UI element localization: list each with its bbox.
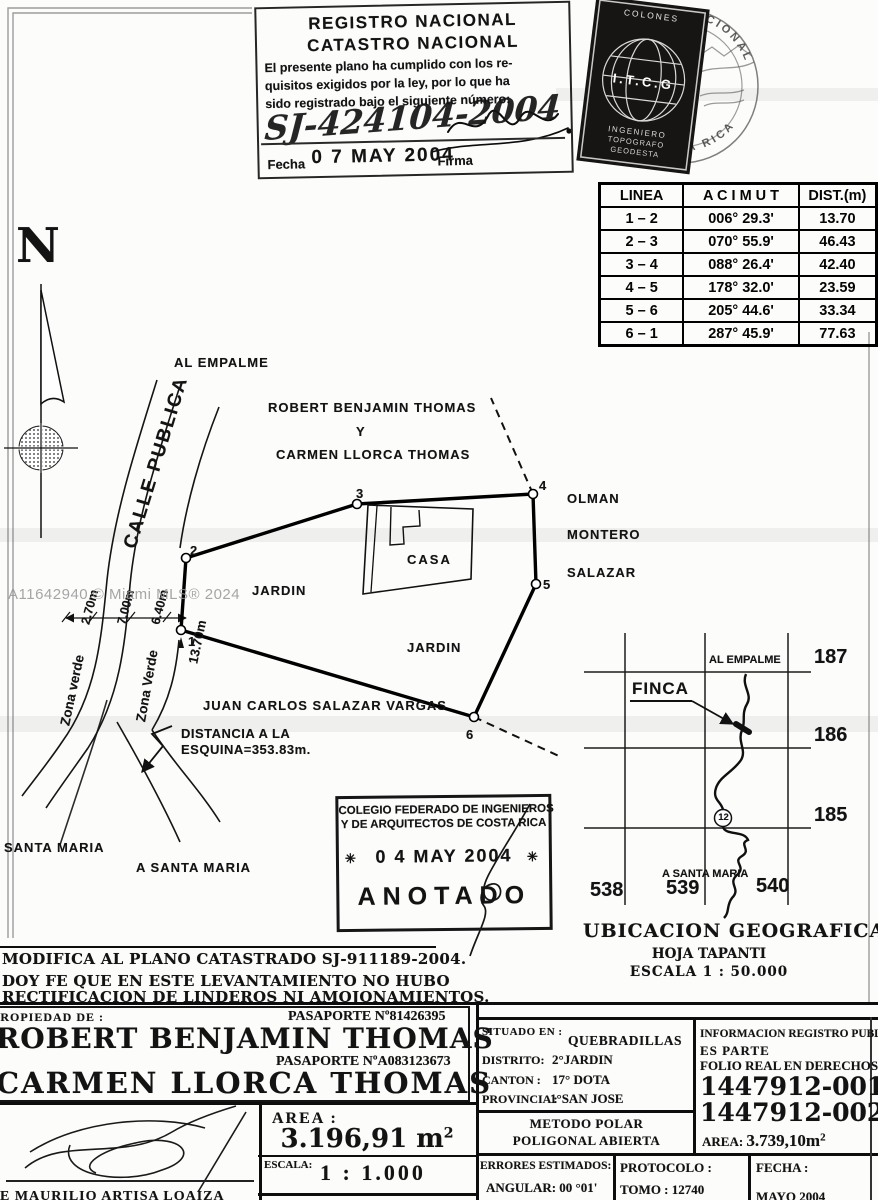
compass-rosette	[4, 423, 78, 473]
stamp-date: 0 7 MAY 2004	[311, 144, 455, 169]
vertex-5-label: 5	[543, 577, 550, 592]
metodo-line2: POLIGONAL ABIERTA	[478, 1133, 695, 1149]
table-row: 2 – 3070° 55.9'46.43	[600, 230, 877, 253]
table-row: 4 – 5178° 32.0'23.59	[600, 276, 877, 299]
cell-linea: 5 – 6	[600, 299, 684, 322]
provincia-value: 1°SAN JOSE	[550, 1091, 623, 1107]
canton-value: 17° DOTA	[552, 1072, 610, 1088]
registry-info-line2: ES PARTE	[700, 1043, 770, 1059]
azimuth-header-row: LINEA A C I M U T DIST.(m)	[600, 184, 877, 208]
vertex-1-label: 1	[188, 634, 195, 649]
azimuth-table: LINEA A C I M U T DIST.(m) 1 – 2006° 29.…	[598, 182, 878, 347]
metodo-line1: METODO POLAR	[478, 1116, 695, 1132]
map-title: UBICACION GEOGRAFICA	[583, 920, 835, 942]
footer-rule	[748, 1153, 751, 1200]
cell-acimut: 205° 44.6'	[683, 299, 799, 322]
vertex-3-label: 3	[356, 486, 363, 501]
map-sheet-label: HOJA TAPANTI	[583, 946, 835, 962]
tomo-value: TOMO : 12740	[620, 1182, 704, 1198]
engineer-seal-stamp: COLONES I.T.C.G INGENIERO TOPOGRAFO GEOD…	[576, 0, 709, 174]
distrito-value: 2°JARDIN	[552, 1052, 613, 1068]
area-superscript: 2	[444, 1125, 454, 1141]
anotado-word: ANOTADO	[339, 881, 549, 912]
notes-rule	[0, 946, 436, 948]
map-a-santa-maria-label: A SANTA MARIA	[662, 868, 748, 880]
seal-colones-text: COLONES	[623, 7, 679, 24]
vertex-6-label: 6	[466, 727, 473, 742]
registro-nacional-stamp: REGISTRO NACIONAL CATASTRO NACIONAL El p…	[254, 1, 574, 180]
table-row: 5 – 6205° 44.6'33.34	[600, 299, 877, 322]
folio-number-2: 1447912-002	[700, 1098, 878, 1127]
surveyor-name: E MAURILIO ARTISA LOAIZA	[0, 1189, 225, 1200]
al-empalme-label: AL EMPALME	[174, 355, 269, 370]
footer-rule	[258, 1155, 478, 1157]
cell-dist: 23.59	[799, 276, 877, 299]
situado-value: QUEBRADILLAS	[568, 1033, 682, 1049]
area-number: 3.196,91 m	[281, 1124, 444, 1154]
situado-label: SITUADO EN :	[482, 1026, 563, 1038]
canton-label: CANTON :	[482, 1073, 541, 1088]
fecha-footer-value: MAYO 2004	[756, 1189, 825, 1200]
registry-area: AREA: 3.739,10m2	[702, 1131, 826, 1151]
santa-maria-label: SANTA MARIA	[4, 840, 105, 855]
vertex-2-label: 2	[190, 543, 197, 558]
table-row: 6 – 1287° 45.9'77.63	[600, 322, 877, 346]
map-al-empalme-label: AL EMPALME	[709, 654, 781, 666]
anotado-stamp: COLEGIO FEDERADO DE INGENIEROS Y DE ARQU…	[335, 794, 552, 932]
cell-dist: 13.70	[799, 207, 877, 230]
location-map-grid	[584, 633, 811, 905]
escala-value: 1 : 1.000	[320, 1160, 426, 1186]
anotado-line1: COLEGIO FEDERADO DE INGENIEROS	[338, 803, 548, 817]
map-lat-185: 185	[814, 804, 847, 827]
cell-linea: 3 – 4	[600, 253, 684, 276]
north-label: N	[16, 218, 60, 274]
footer-rule	[0, 1002, 878, 1005]
scanned-cadastral-survey-plan: REGISTRO NACIONAL DE COSTA RICA	[0, 0, 878, 1200]
owner-name-line2: Y	[356, 424, 365, 439]
cell-dist: 33.34	[799, 299, 877, 322]
footer-rule	[613, 1153, 616, 1200]
cell-linea: 6 – 1	[600, 322, 684, 346]
folio-number-1: 1447912-001	[700, 1072, 878, 1101]
cell-linea: 2 – 3	[600, 230, 684, 253]
escala-label: ESCALA:	[264, 1159, 312, 1171]
stamp-body-1: El presente plano ha cumplido con los re…	[264, 56, 512, 75]
footer-rule	[478, 1017, 878, 1020]
map-scale-label: ESCALA 1 : 50.000	[583, 964, 835, 980]
seal-initials-text: I.T.C.G	[612, 70, 675, 92]
cell-acimut: 006° 29.3'	[683, 207, 799, 230]
signature-underline	[6, 1180, 254, 1182]
col-header-acimut: A C I M U T	[683, 184, 799, 208]
finca-pointer	[630, 701, 733, 724]
mls-watermark: A11642940 © Miami MLS® 2024	[8, 586, 240, 603]
owner-name-line1: ROBERT BENJAMIN THOMAS	[268, 400, 476, 415]
fecha-footer-label: FECHA :	[756, 1160, 808, 1176]
registry-area-value: 3.739,10m	[746, 1131, 820, 1150]
owner-name-line3: CARMEN LLORCA THOMAS	[276, 447, 470, 462]
cell-dist: 77.63	[799, 322, 877, 346]
location-map-road	[715, 674, 750, 918]
cell-linea: 4 – 5	[600, 276, 684, 299]
owner-1-name: ROBERT BENJAMIN THOMAS	[0, 1022, 494, 1055]
a-santa-maria-label: A SANTA MARIA	[136, 860, 251, 875]
stamp-title-2: CATASTRO NACIONAL	[257, 31, 569, 58]
casa-outline	[363, 505, 473, 594]
table-row: 3 – 4088° 26.4'42.40	[600, 253, 877, 276]
cell-acimut: 070° 55.9'	[683, 230, 799, 253]
col-header-linea: LINEA	[600, 184, 684, 208]
distancia-arrow	[142, 726, 172, 772]
col-header-dist: DIST.(m)	[799, 184, 877, 208]
footer-rule	[258, 1193, 478, 1196]
errores-label: ERRORES ESTIMADOS:	[480, 1160, 611, 1172]
map-lon-538: 538	[590, 879, 623, 902]
map-lat-187: 187	[814, 646, 847, 669]
errores-value: ANGULAR: 00 °01'	[486, 1180, 597, 1196]
north-arrow	[4, 284, 78, 538]
neighbor-south-label: JUAN CARLOS SALAZAR VARGAS	[203, 698, 447, 713]
jardin-bottom-label: JARDIN	[407, 640, 461, 655]
map-lon-540: 540	[756, 875, 789, 898]
table-row: 1 – 2006° 29.3'13.70	[600, 207, 877, 230]
footer-rule	[478, 1153, 878, 1156]
firma-label: Firma	[437, 153, 473, 169]
cell-dist: 46.43	[799, 230, 877, 253]
cell-acimut: 287° 45.9'	[683, 322, 799, 346]
fecha-label: Fecha	[267, 156, 305, 172]
vertex-4-label: 4	[539, 478, 546, 493]
distancia-line1: DISTANCIA A LA	[181, 726, 290, 741]
cell-acimut: 088° 26.4'	[683, 253, 799, 276]
cell-acimut: 178° 32.0'	[683, 276, 799, 299]
registry-area-superscript: 2	[820, 1132, 826, 1144]
map-lat-186: 186	[814, 724, 847, 747]
provincia-label: PROVINCIA :	[482, 1092, 558, 1107]
map-finca-label: FINCA	[632, 679, 689, 699]
map-lon-539: 539	[666, 877, 699, 900]
protocolo-label: PROTOCOLO :	[620, 1160, 712, 1176]
jardin-left-label: JARDIN	[252, 583, 306, 598]
footer-rule	[0, 1102, 478, 1105]
cell-linea: 1 – 2	[600, 207, 684, 230]
neighbor-east-line2: MONTERO	[567, 527, 640, 542]
anotado-line2: Y DE ARQUITECTOS DE COSTA RICA	[339, 817, 549, 831]
owner-2-name: CARMEN LLORCA THOMAS	[0, 1066, 492, 1100]
registry-info-line1: INFORMACION REGISTRO PUBLICO	[700, 1026, 878, 1041]
distancia-line2: ESQUINA=353.83m.	[181, 742, 311, 757]
neighbor-east-line1: OLMAN	[567, 491, 620, 506]
route-12-badge: 12	[716, 812, 731, 823]
vertex-markers	[177, 490, 541, 722]
note-modifica: MODIFICA AL PLANO CATASTRADO SJ-911189-2…	[2, 950, 466, 968]
neighbor-east-line3: SALAZAR	[567, 565, 636, 580]
anotado-date: 0 4 MAY 2004	[339, 845, 549, 868]
stamp-body-2: quisitos exigidos por la ley, por lo que…	[265, 74, 510, 93]
casa-label: CASA	[407, 552, 452, 567]
registry-area-label: AREA:	[702, 1134, 743, 1149]
footer-rule	[478, 1110, 695, 1113]
engineer-seal-graphic: COLONES I.T.C.G INGENIERO TOPOGRAFO GEOD…	[576, 0, 709, 174]
cell-dist: 42.40	[799, 253, 877, 276]
distrito-label: DISTRITO:	[482, 1053, 544, 1068]
area-value: 3.196,91 m2	[262, 1124, 472, 1154]
